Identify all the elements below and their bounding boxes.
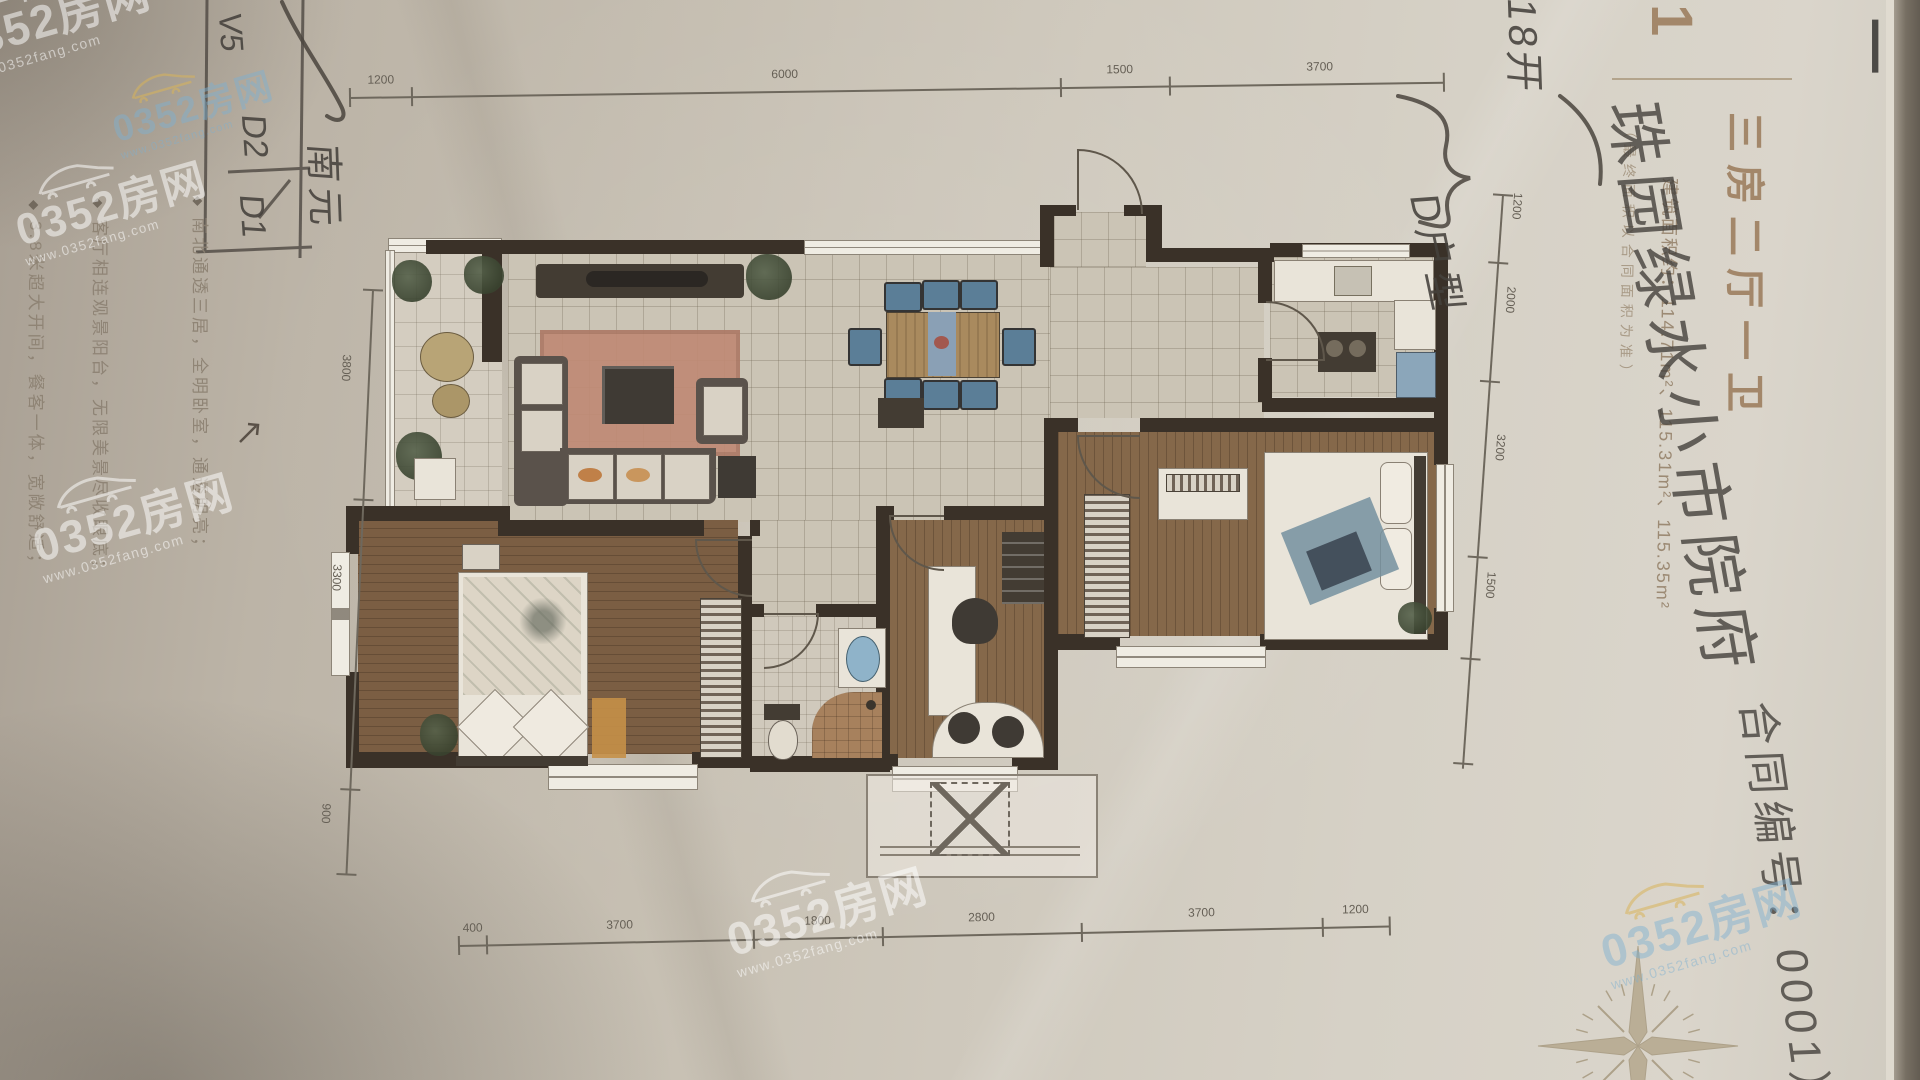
entry-door-arc — [1078, 150, 1142, 214]
dim-label-left: 3800 — [338, 338, 355, 399]
title-rule — [1612, 78, 1792, 80]
dim-label-top: 1200 — [351, 72, 411, 87]
dim-label-top: 6000 — [755, 67, 815, 82]
dim-tick — [1081, 923, 1083, 942]
dim-label-left: 900 — [318, 783, 335, 844]
bath-door-arc — [764, 614, 818, 668]
pencil-arrow — [240, 424, 258, 442]
dim-label-bottom: 3700 — [1171, 905, 1231, 920]
kitchen-door-arc — [1266, 302, 1324, 360]
master-door-arc — [696, 540, 752, 596]
handwriting-18kai: 18开 — [1496, 0, 1558, 98]
dim-label-left: 3300 — [329, 547, 346, 608]
bedroom2-door-arc — [1078, 436, 1140, 498]
study-door-arc — [890, 516, 944, 570]
unit-index-number: 1 — [1642, 4, 1700, 36]
dim-label-bottom: 1200 — [1325, 902, 1385, 917]
dim-tick — [1060, 78, 1062, 97]
dim-tick — [1169, 77, 1171, 96]
dim-label-bottom: 400 — [442, 920, 502, 935]
dim-label-bottom: 3700 — [589, 917, 649, 932]
pencil-stroke — [282, 2, 344, 120]
dim-tick — [349, 88, 351, 107]
handwriting-cell-d1: D1 — [231, 193, 273, 239]
dim-tick — [486, 935, 488, 954]
handwriting-south-note: 南元 — [299, 142, 357, 234]
floorplan-photo: 1200 6000 1500 3700 400 3700 1800 2800 3… — [0, 0, 1920, 1080]
dim-tick — [1443, 73, 1445, 92]
dim-tick — [458, 936, 460, 955]
dim-label-top: 1500 — [1090, 62, 1150, 77]
dim-label-bottom: 2800 — [951, 909, 1011, 924]
paper-edge — [1886, 0, 1894, 1080]
pencil-box-line — [228, 168, 310, 172]
dim-tick — [1389, 916, 1391, 935]
paper-edge-shadow — [1894, 0, 1920, 1080]
dim-tick — [1322, 918, 1324, 937]
dim-tick — [411, 87, 413, 106]
dim-label-top: 3700 — [1290, 59, 1350, 74]
